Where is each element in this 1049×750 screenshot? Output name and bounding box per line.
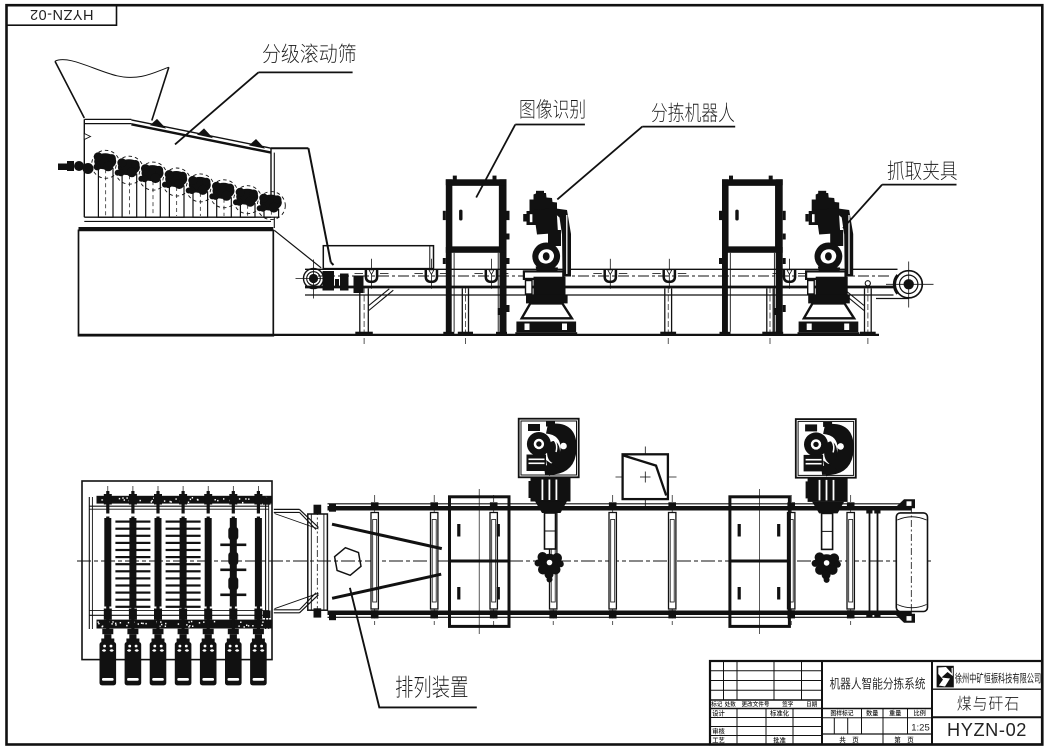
svg-text:HYZN-02: HYZN-02 <box>30 6 94 22</box>
svg-text:HYZN-02: HYZN-02 <box>947 720 1027 740</box>
svg-text:1:25: 1:25 <box>911 723 930 734</box>
